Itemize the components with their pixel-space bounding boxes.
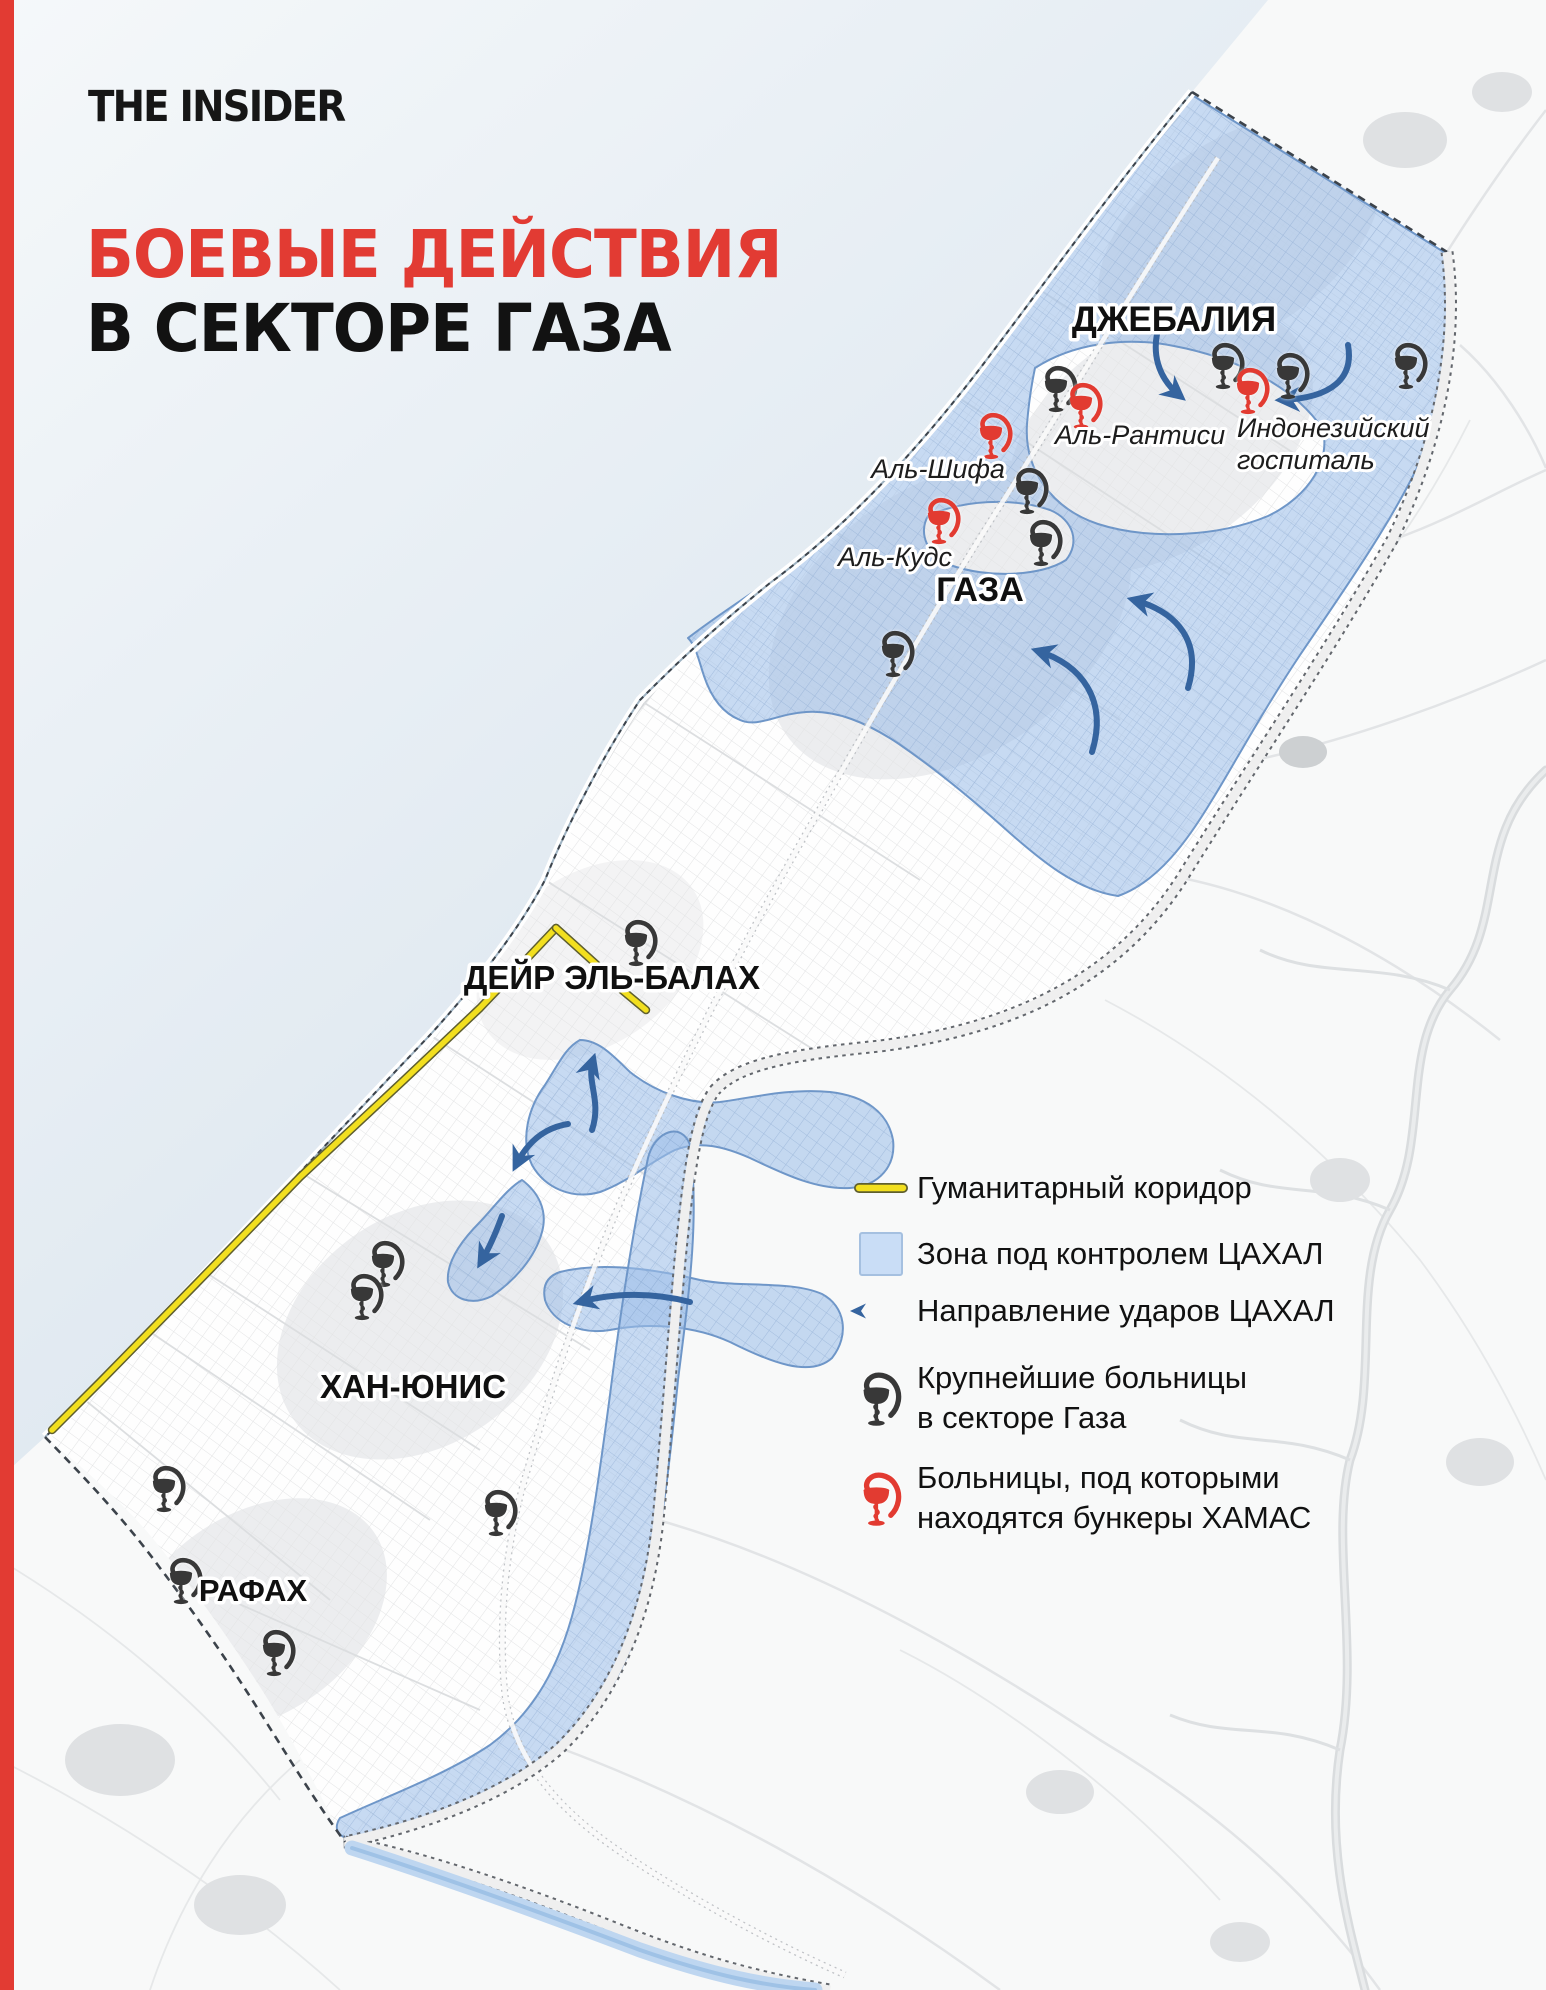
legend-item-zone: Зона под контролем ЦАХАЛ [845, 1231, 1324, 1277]
legend-item-strike-direction: Направление ударов ЦАХАЛ [845, 1291, 1335, 1331]
hospital-label-indonesian-2: госпиталь [1237, 445, 1375, 475]
hospital-red-icon [845, 1468, 917, 1528]
strike-arrow-icon [845, 1301, 917, 1321]
title-line-black: В СЕКТОРЕ ГАЗА [86, 292, 782, 366]
accent-bar [0, 0, 14, 1990]
legend-label: Гуманитарный коридор [917, 1168, 1252, 1208]
legend-item-bunker-hospitals: Больницы, под которыминаходятся бункеры … [845, 1458, 1311, 1538]
legend-item-corridor: Гуманитарный коридор [845, 1168, 1252, 1208]
city-label-jabalia: ДЖЕБАЛИЯ [1072, 300, 1276, 339]
legend-item-hospitals: Крупнейшие больницыв секторе Газа [845, 1358, 1247, 1438]
legend-label: Крупнейшие больницыв секторе Газа [917, 1358, 1247, 1438]
brand-logo: THE INSIDER [88, 82, 344, 132]
corridor-line-icon [845, 1177, 917, 1199]
title-line-red: БОЕВЫЕ ДЕЙСТВИЯ [86, 218, 782, 292]
hospital-black-icon [845, 1368, 917, 1428]
city-label-rafah: РАФАХ [199, 1573, 308, 1608]
infographic-canvas: ДЖЕБАЛИЯ ГАЗА ДЕЙР ЭЛЬ-БАЛАХ ХАН-ЮНИС РА… [0, 0, 1546, 1990]
hospital-label-quds: Аль-Кудс [836, 542, 952, 572]
legend-label: Направление ударов ЦАХАЛ [917, 1291, 1335, 1331]
hospital-label-shifa: Аль-Шифа [869, 454, 1005, 484]
page-title: БОЕВЫЕ ДЕЙСТВИЯ В СЕКТОРЕ ГАЗА [86, 218, 782, 366]
city-label-khan-yunis: ХАН-ЮНИС [320, 1368, 506, 1405]
hospital-label-indonesian-1: Индонезийский [1237, 413, 1430, 443]
legend-label: Зона под контролем ЦАХАЛ [917, 1234, 1324, 1274]
city-label-gaza: ГАЗА [936, 571, 1024, 609]
legend-label: Больницы, под которыминаходятся бункеры … [917, 1458, 1311, 1538]
hospital-label-rantisi: Аль-Рантиси [1053, 420, 1225, 450]
zone-swatch-icon [845, 1231, 917, 1277]
city-label-deir-el-balah: ДЕЙР ЭЛЬ-БАЛАХ [464, 958, 760, 996]
